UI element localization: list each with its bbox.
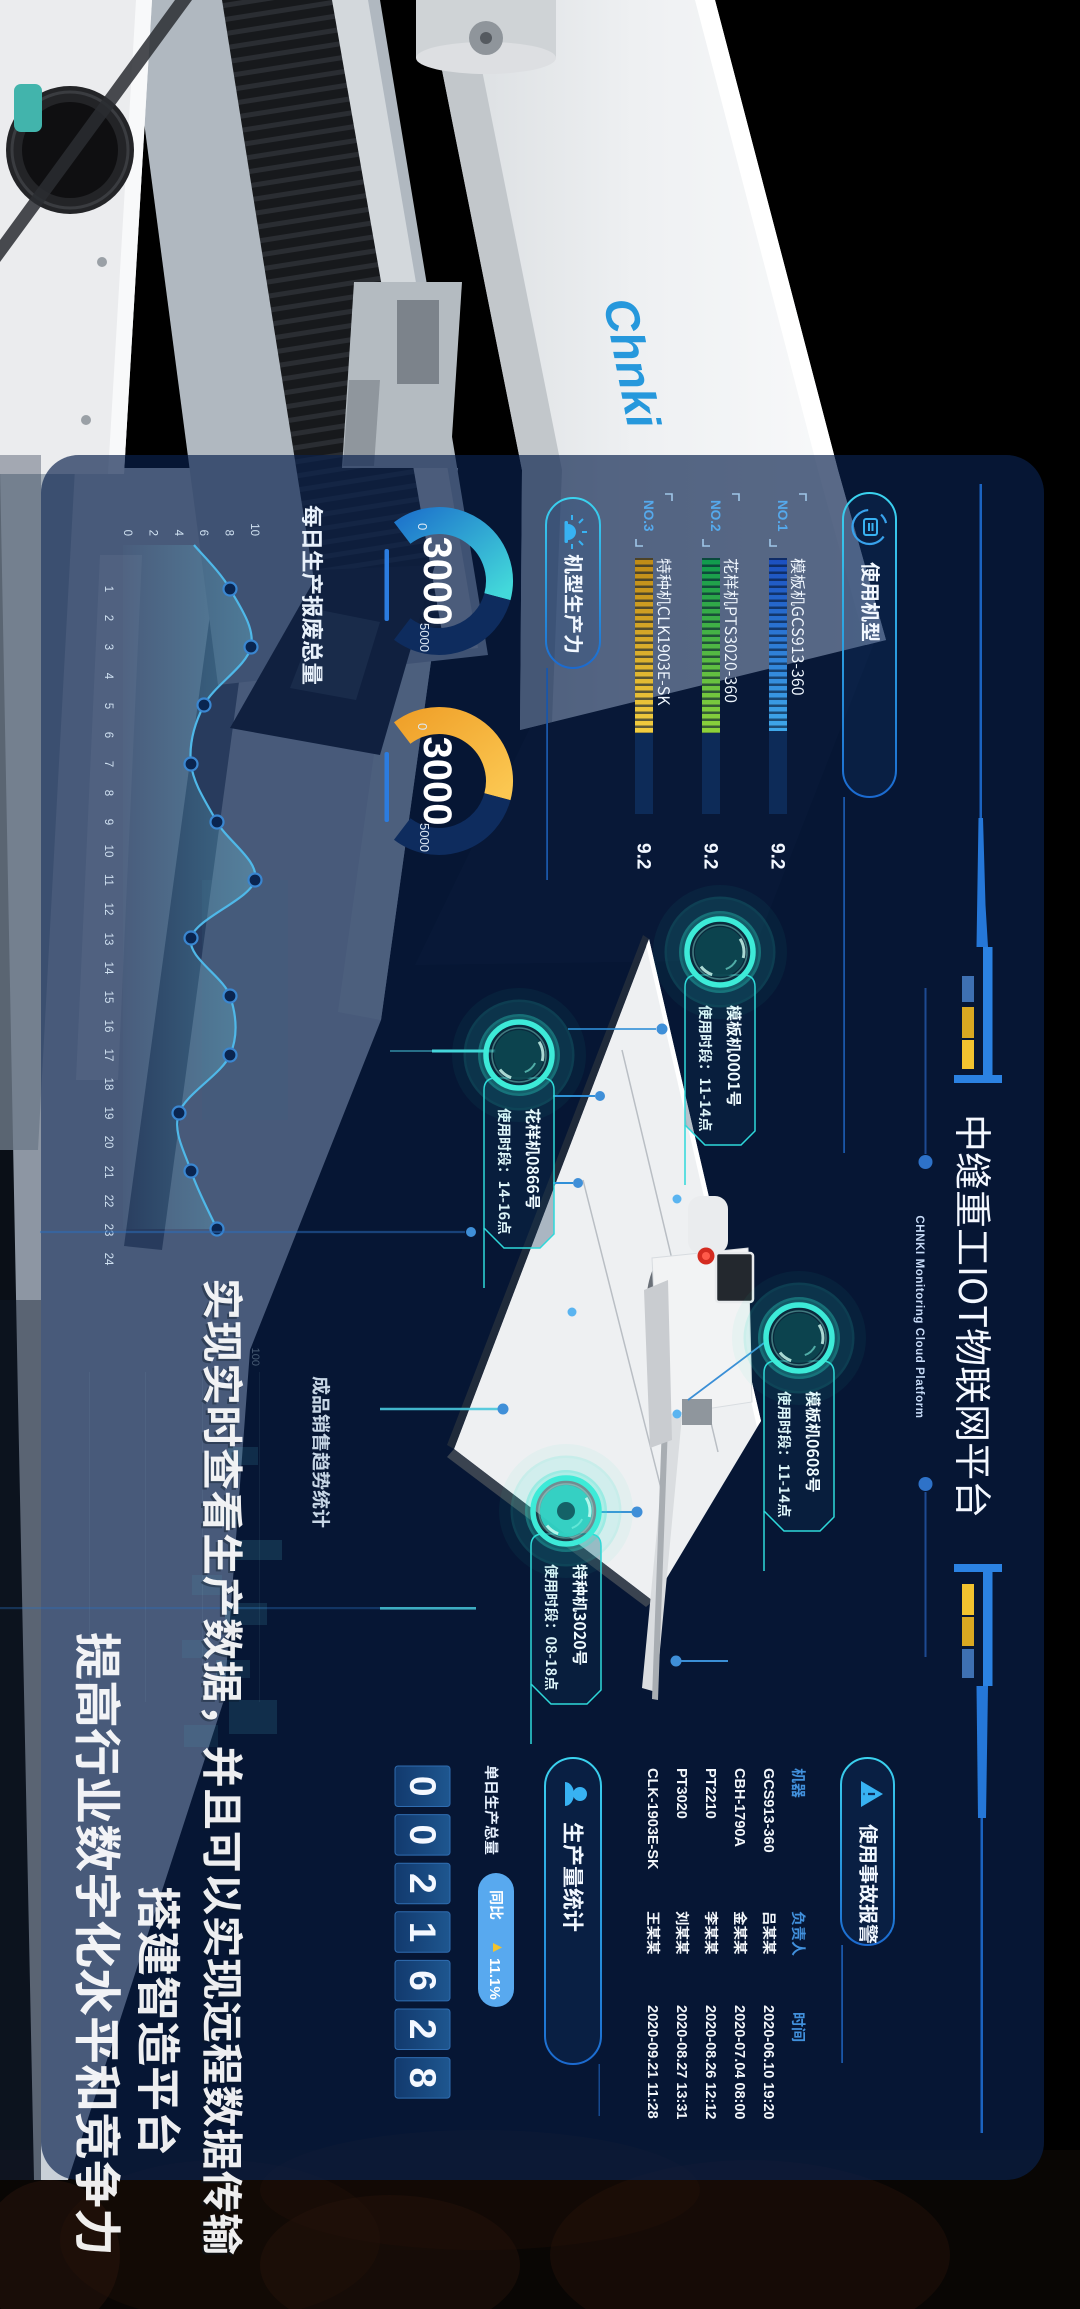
svg-text:2: 2	[402, 2019, 443, 2040]
svg-text:0: 0	[415, 523, 430, 530]
svg-text:11.1%: 11.1%	[486, 1958, 503, 2000]
svg-text:2020-07.04 08:00: 2020-07.04 08:00	[731, 2005, 747, 2120]
svg-text:NO.2: NO.2	[708, 500, 723, 532]
svg-text:CHNKI Monitoring Cloud Platfor: CHNKI Monitoring Cloud Platform	[913, 1215, 925, 1418]
svg-text:10: 10	[248, 523, 260, 536]
svg-text:NO.3: NO.3	[641, 500, 656, 532]
svg-text:6: 6	[402, 1970, 443, 1991]
svg-text:7: 7	[102, 761, 114, 767]
svg-text:9.2: 9.2	[700, 843, 721, 869]
svg-text:9: 9	[102, 819, 114, 825]
svg-text:24: 24	[102, 1253, 114, 1266]
svg-text:0: 0	[402, 1776, 443, 1797]
svg-text:22: 22	[102, 1195, 114, 1208]
svg-text:2020-09.21 11:28: 2020-09.21 11:28	[644, 2005, 660, 2119]
svg-text:CLK-1903E-SK: CLK-1903E-SK	[644, 1768, 660, 1870]
svg-text:2020-08.26 12:12: 2020-08.26 12:12	[702, 2005, 718, 2120]
svg-text:0: 0	[402, 1825, 443, 1846]
svg-text:4: 4	[172, 530, 184, 537]
svg-text:8: 8	[102, 790, 114, 796]
svg-text:2: 2	[102, 615, 114, 621]
svg-text:3000: 3000	[415, 737, 459, 826]
svg-text:15: 15	[102, 991, 114, 1004]
svg-text:17: 17	[102, 1049, 114, 1062]
svg-text:5: 5	[102, 703, 114, 709]
svg-text:23: 23	[102, 1224, 114, 1237]
svg-text:NO.1: NO.1	[775, 500, 790, 532]
svg-text:12: 12	[102, 903, 114, 916]
svg-text:3: 3	[102, 644, 114, 650]
svg-text:20: 20	[102, 1136, 114, 1149]
svg-text:8: 8	[223, 530, 235, 536]
svg-text:5000: 5000	[417, 823, 432, 852]
svg-text:2: 2	[402, 1873, 443, 1894]
svg-text:0: 0	[121, 530, 133, 536]
svg-text:6: 6	[197, 530, 209, 536]
svg-text:14: 14	[102, 962, 114, 975]
svg-text:2: 2	[146, 530, 158, 536]
svg-text:2020-06.10 19:20: 2020-06.10 19:20	[760, 2005, 776, 2120]
svg-text:3000: 3000	[415, 537, 459, 626]
svg-text:GCS913-360: GCS913-360	[760, 1768, 776, 1853]
svg-text:5000: 5000	[417, 623, 432, 652]
svg-text:6: 6	[102, 732, 114, 738]
svg-text:10: 10	[102, 845, 114, 858]
svg-text:11: 11	[102, 874, 114, 886]
svg-text:9.2: 9.2	[767, 843, 788, 869]
svg-text:PT3020: PT3020	[673, 1768, 689, 1819]
svg-text:0: 0	[415, 723, 430, 730]
svg-text:1: 1	[402, 1922, 443, 1943]
svg-text:1: 1	[102, 586, 114, 592]
svg-text:9.2: 9.2	[633, 843, 654, 869]
svg-text:19: 19	[102, 1107, 114, 1120]
svg-text:16: 16	[102, 1020, 114, 1033]
svg-text:21: 21	[102, 1166, 114, 1179]
svg-text:13: 13	[102, 933, 114, 946]
svg-text:18: 18	[102, 1078, 114, 1091]
svg-text:PT2210: PT2210	[702, 1768, 718, 1819]
svg-text:4: 4	[102, 673, 114, 680]
svg-text:8: 8	[402, 2068, 443, 2089]
svg-text:2020-08.27 13:31: 2020-08.27 13:31	[673, 2005, 689, 2120]
svg-text:100: 100	[249, 1348, 261, 1366]
svg-text:CBH-1790A: CBH-1790A	[731, 1768, 747, 1847]
